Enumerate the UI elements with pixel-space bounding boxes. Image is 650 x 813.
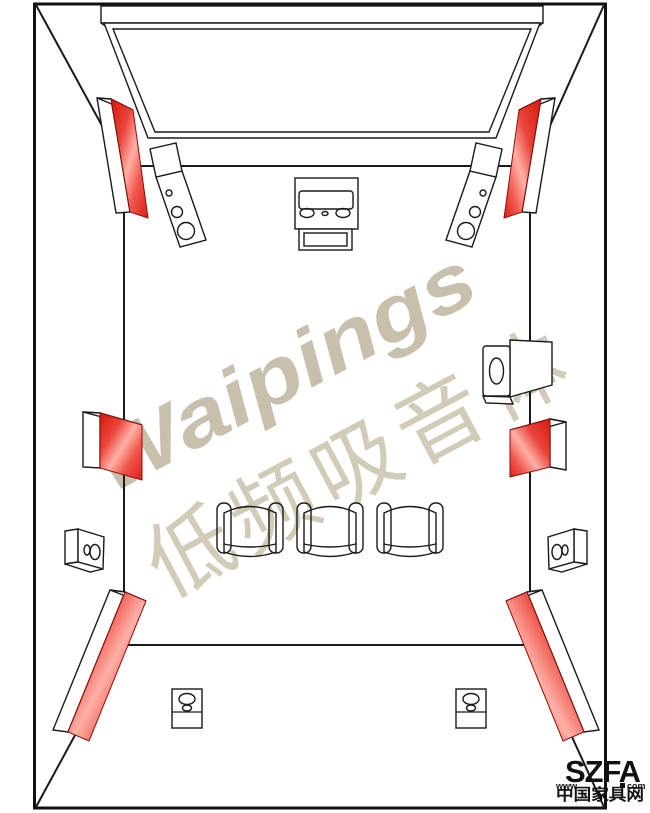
room-acoustics-diagram: Waipings 低频吸音体 bbox=[0, 0, 650, 813]
screen-outer-face bbox=[104, 23, 540, 138]
rear-floor-speaker-right bbox=[456, 689, 486, 728]
wall-speaker-left bbox=[65, 529, 104, 572]
rear-floor-speaker-left bbox=[172, 689, 202, 728]
bass-absorber-panel-mid-right bbox=[510, 419, 566, 477]
projection-screen bbox=[101, 6, 543, 138]
center-equipment-rack bbox=[295, 178, 358, 250]
diagram-canvas: Waipings 低频吸音体 bbox=[0, 0, 650, 813]
wall-speaker-right bbox=[548, 529, 587, 572]
screen-top-frame bbox=[101, 6, 543, 23]
logo-site-name: 中国家具网 bbox=[556, 785, 644, 804]
szfa-logo: www SZFA com 中国家具网 bbox=[555, 754, 646, 804]
